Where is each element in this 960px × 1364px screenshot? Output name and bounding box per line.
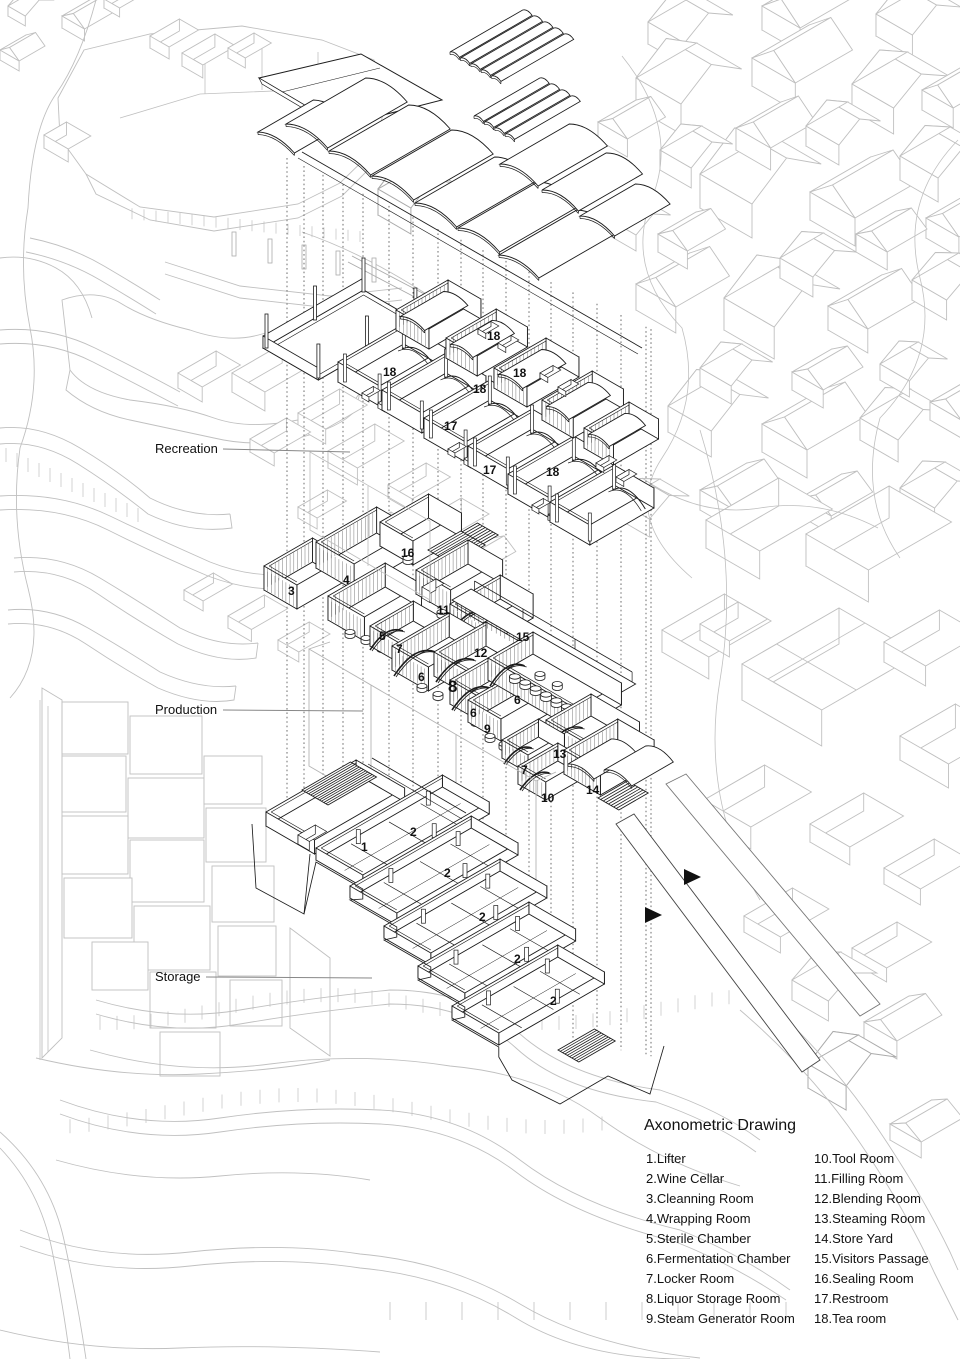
svg-text:7.Locker Room: 7.Locker Room	[646, 1271, 734, 1286]
svg-text:18: 18	[383, 365, 397, 379]
svg-text:17: 17	[483, 463, 497, 477]
svg-text:2: 2	[479, 910, 486, 924]
svg-text:3.Cleanning Room: 3.Cleanning Room	[646, 1191, 754, 1206]
svg-text:16.Sealing Room: 16.Sealing Room	[814, 1271, 914, 1286]
svg-text:9: 9	[484, 722, 491, 736]
svg-text:3: 3	[288, 584, 295, 598]
svg-text:4: 4	[343, 573, 350, 587]
svg-text:1.Lifter: 1.Lifter	[646, 1151, 686, 1166]
svg-text:2: 2	[444, 866, 451, 880]
svg-text:1: 1	[361, 840, 368, 854]
svg-text:2: 2	[514, 952, 521, 966]
svg-text:18: 18	[487, 329, 501, 343]
svg-text:16: 16	[401, 546, 415, 560]
svg-text:2.Wine Cellar: 2.Wine Cellar	[646, 1171, 725, 1186]
svg-text:7: 7	[521, 763, 528, 777]
svg-text:Storage: Storage	[155, 969, 201, 984]
svg-text:9.Steam Generator Room: 9.Steam Generator Room	[646, 1311, 795, 1326]
svg-text:18.Tea room: 18.Tea room	[814, 1311, 886, 1326]
svg-text:18: 18	[513, 366, 527, 380]
svg-text:Axonometric Drawing: Axonometric Drawing	[644, 1117, 796, 1134]
svg-text:12.Blending Room: 12.Blending Room	[814, 1191, 921, 1206]
svg-text:8.Liquor Storage Room: 8.Liquor Storage Room	[646, 1291, 780, 1306]
svg-text:18: 18	[546, 465, 560, 479]
svg-text:13: 13	[553, 747, 567, 761]
svg-text:6: 6	[470, 706, 477, 720]
svg-text:11.Filling Room: 11.Filling Room	[814, 1171, 903, 1186]
svg-text:12: 12	[474, 646, 488, 660]
svg-text:Production: Production	[155, 702, 217, 717]
svg-text:Recreation: Recreation	[155, 441, 218, 456]
svg-text:8: 8	[448, 677, 457, 696]
svg-text:14: 14	[586, 783, 600, 797]
svg-text:11: 11	[437, 603, 450, 617]
svg-text:13.Steaming Room: 13.Steaming Room	[814, 1211, 925, 1226]
svg-text:17: 17	[444, 419, 458, 433]
svg-text:15: 15	[516, 630, 530, 644]
svg-text:7: 7	[396, 642, 403, 656]
svg-text:10.Tool Room: 10.Tool Room	[814, 1151, 894, 1166]
svg-text:10: 10	[541, 791, 555, 805]
svg-text:6.Fermentation Chamber: 6.Fermentation Chamber	[646, 1251, 791, 1266]
svg-text:2: 2	[550, 994, 557, 1008]
svg-text:14.Store Yard: 14.Store Yard	[814, 1231, 893, 1246]
svg-text:4.Wrapping Room: 4.Wrapping Room	[646, 1211, 751, 1226]
svg-text:6: 6	[514, 693, 521, 707]
svg-text:2: 2	[410, 825, 417, 839]
svg-text:15.Visitors Passage: 15.Visitors Passage	[814, 1251, 929, 1266]
svg-text:5: 5	[379, 629, 386, 643]
svg-text:17.Restroom: 17.Restroom	[814, 1291, 888, 1306]
svg-text:6: 6	[418, 670, 425, 684]
svg-text:5.Sterile Chamber: 5.Sterile Chamber	[646, 1231, 751, 1246]
svg-text:18: 18	[473, 382, 487, 396]
